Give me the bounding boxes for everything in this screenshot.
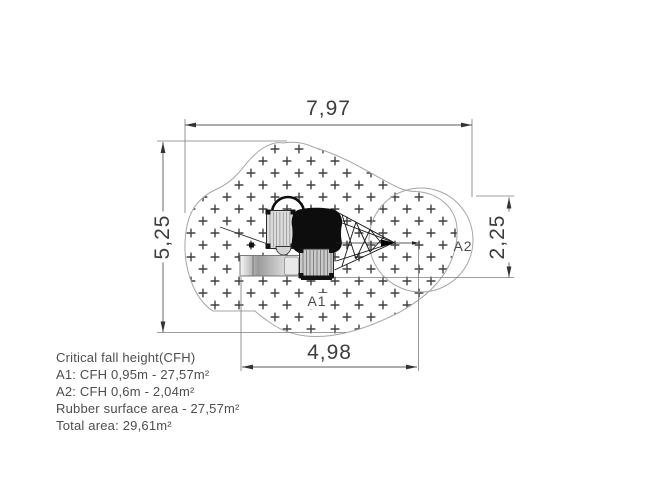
area-label-a1: A1 bbox=[305, 293, 328, 309]
dimension-bottom-width: 4,98 bbox=[242, 341, 417, 365]
area-label-a2: A2 bbox=[451, 238, 474, 254]
dimension-left-height: 5,25 bbox=[151, 212, 175, 263]
cfh-notes: Critical fall height(CFH) A1: CFH 0,95m … bbox=[56, 349, 240, 434]
notes-total-area: Total area: 29,61m² bbox=[56, 417, 240, 434]
dimension-right-height: 2,25 bbox=[486, 212, 510, 263]
notes-a2: A2: CFH 0,6m - 2,04m² bbox=[56, 383, 240, 400]
tower-roof bbox=[292, 208, 342, 255]
dimension-top-width: 7,97 bbox=[185, 97, 472, 121]
surfacing-plan-drawing: 7,97 5,25 4,98 2,25 A1 A2 Critical fall … bbox=[0, 0, 647, 500]
post-marker bbox=[249, 243, 254, 248]
slide bbox=[240, 256, 300, 277]
left-platform bbox=[266, 210, 296, 249]
notes-heading: Critical fall height(CFH) bbox=[56, 349, 240, 366]
notes-a1: A1: CFH 0,95m - 27,57m² bbox=[56, 366, 240, 383]
bottom-platform bbox=[299, 248, 335, 280]
notes-rubber-area: Rubber surface area - 27,57m² bbox=[56, 400, 240, 417]
